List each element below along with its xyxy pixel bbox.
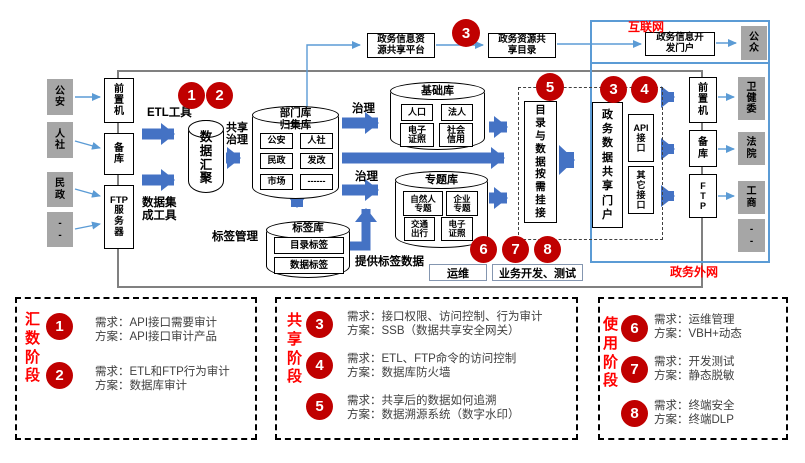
consumer-health: 卫 健 委	[738, 77, 765, 120]
legend-badge-3: 3	[306, 311, 333, 338]
tag-management-label: 标签管理	[212, 231, 258, 244]
topic-cell: 电子 证照	[441, 217, 473, 241]
tag-db: 标签库 目录标签 数据标签	[266, 221, 350, 278]
dept-cell: 公安	[260, 133, 293, 149]
right-front-machine: 前 置 机	[689, 77, 717, 123]
left-front-machine: 前 置 机	[104, 78, 134, 123]
base-cell: 社会 信用	[439, 123, 473, 147]
diagram-canvas: 公 安 人 社 民 政 - - 前 置 机 备 库 FTP 服 务 器 ETL工…	[0, 0, 805, 463]
left-backup-db: 备 库	[104, 133, 134, 175]
dev-test-box: 业务开发、测试	[492, 264, 583, 281]
dept-cell: ------	[300, 174, 333, 190]
tag-cell: 数据标签	[274, 257, 344, 274]
api-interface-box: API 接 口	[628, 114, 654, 162]
legend-req: 需求：共享后的数据如何追溯	[347, 394, 520, 408]
share-portal-box: 政 务 数 据 共 享 门 户	[592, 102, 623, 228]
tag-cell: 目录标签	[274, 237, 344, 254]
legend-badge-8: 8	[621, 400, 648, 427]
badge-3-portal: 3	[600, 76, 627, 103]
badge-6: 6	[470, 236, 497, 263]
dept-cell: 发改	[300, 153, 333, 169]
dept-cell: 民政	[260, 153, 293, 169]
legend-item: 需求：接口权限、访问控制、行为审计 方案：SSB（数据共享安全网关）	[347, 310, 543, 338]
legend-req: 需求：ETL、FTP命令的访问控制	[347, 352, 516, 366]
dept-cell: 市场	[260, 174, 293, 190]
mount-box: 目 录 与 数 据 按 需 挂 接	[524, 101, 557, 223]
legend-sol: 方案：数据库防火墙	[347, 366, 516, 380]
legend-sol: 方案：API接口审计产品	[95, 330, 217, 344]
left-ftp-server: FTP 服 务 器	[104, 185, 134, 249]
legend-sol: 方案：静态脱敏	[654, 369, 735, 383]
legend-req: 需求：终端安全	[654, 399, 735, 413]
topic-db: 专题库 自然人 专题 企业 专题 交通 出行 电子 证照	[395, 171, 488, 248]
internet-label: 互联网	[628, 21, 664, 34]
source-hr: 人 社	[47, 122, 73, 158]
legend-badge-7: 7	[621, 356, 648, 383]
badge-7: 7	[502, 236, 529, 263]
etl-tool-label: ETL工具	[147, 107, 192, 120]
share-catalog-box: 政务资源共 享目录	[488, 33, 556, 58]
legend-collect-title: 汇 数 阶 段	[25, 311, 40, 386]
base-cell: 电子 证照	[400, 123, 434, 147]
tag-db-title: 标签库	[267, 223, 349, 235]
legend-badge-6: 6	[621, 315, 648, 342]
topic-db-title: 专题库	[396, 174, 487, 186]
legend-sol: 方案：VBH+动态	[654, 327, 742, 341]
base-cell: 法人	[441, 104, 473, 121]
arrow-hr-backup	[75, 141, 100, 148]
department-db-title: 部门库 归集库	[253, 108, 338, 131]
base-cell: 人口	[401, 104, 433, 121]
arrow-others-ftp	[75, 224, 100, 229]
legend-badge-1: 1	[46, 313, 73, 340]
share-platform-box: 政务信息资 源共享平台	[367, 33, 435, 58]
arrow-civil-ftp	[75, 189, 100, 196]
legend-sol: 方案：终端DLP	[654, 413, 735, 427]
legend-use-title: 使 用 阶 段	[603, 316, 618, 391]
legend-req: 需求：API接口需要审计	[95, 316, 217, 330]
legend-item: 需求：终端安全 方案：终端DLP	[654, 399, 735, 427]
legend-sol: 方案：数据库审计	[95, 379, 230, 393]
legend-badge-2: 2	[46, 362, 73, 389]
badge-5: 5	[536, 73, 564, 101]
legend-req: 需求：接口权限、访问控制、行为审计	[347, 310, 543, 324]
legend-req: 需求：开发测试	[654, 355, 735, 369]
source-police: 公 安	[47, 79, 73, 115]
provide-tag-data-label: 提供标签数据	[355, 256, 424, 269]
legend-share-title: 共 享 阶 段	[287, 312, 302, 387]
legend-item: 需求：运维管理 方案：VBH+动态	[654, 313, 742, 341]
arrow-deptdb-platform	[307, 45, 360, 110]
legend-badge-5: 5	[306, 393, 333, 420]
right-backup-db: 备 库	[689, 130, 717, 167]
badge-4-portal: 4	[631, 76, 658, 103]
badge-2: 2	[206, 82, 233, 109]
right-ftp: F T P	[689, 174, 717, 218]
department-db: 部门库 归集库 公安 人社 民政 发改 市场 ------	[252, 106, 339, 199]
aggregation-db-title: 数 据 汇 聚	[189, 131, 223, 186]
governance-bottom-label: 治理	[355, 171, 378, 184]
dept-cell: 人社	[300, 133, 333, 149]
base-db-title: 基础库	[391, 85, 484, 97]
arrow-tagdb-topic	[349, 209, 366, 246]
legend-req: 需求：ETL和FTP行为审计	[95, 365, 230, 379]
base-db: 基础库 人口 法人 电子 证照 社会 信用	[390, 82, 485, 150]
legend-item: 需求：开发测试 方案：静态脱敏	[654, 355, 735, 383]
source-others: - -	[47, 212, 73, 247]
legend-req: 需求：运维管理	[654, 313, 742, 327]
aggregation-db: 数 据 汇 聚	[188, 120, 224, 193]
integration-tool-label: 数据集 成工具	[142, 197, 177, 223]
share-governance-label: 共享 治理	[226, 122, 248, 147]
badge-1: 1	[178, 82, 205, 109]
public-box: 公 众	[741, 26, 767, 60]
other-interface-box: 其 它 接 口	[628, 166, 654, 214]
badge-8: 8	[534, 236, 561, 263]
consumer-court: 法 院	[738, 132, 765, 165]
topic-cell: 自然人 专题	[403, 191, 443, 216]
dev-portal-box: 政务信息开 发门户	[645, 32, 715, 56]
legend-badge-4: 4	[306, 352, 333, 379]
legend-item: 需求：ETL、FTP命令的访问控制 方案：数据库防火墙	[347, 352, 516, 380]
source-civil: 民 政	[47, 172, 73, 207]
topic-cell: 交通 出行	[404, 217, 435, 241]
consumer-others: - -	[738, 219, 765, 252]
legend-item: 需求：共享后的数据如何追溯 方案：数据溯源系统（数字水印）	[347, 394, 520, 422]
topic-cell: 企业 专题	[446, 191, 478, 216]
legend-sol: 方案：SSB（数据共享安全网关）	[347, 324, 543, 338]
badge-3-top: 3	[452, 19, 480, 47]
ops-box: 运维	[429, 264, 487, 281]
consumer-commerce: 工 商	[738, 181, 765, 214]
legend-item: 需求：ETL和FTP行为审计 方案：数据库审计	[95, 365, 230, 393]
legend-sol: 方案：数据溯源系统（数字水印）	[347, 408, 520, 422]
extranet-label: 政务外网	[670, 266, 718, 279]
governance-top-label: 治理	[352, 103, 375, 116]
legend-item: 需求：API接口需要审计 方案：API接口审计产品	[95, 316, 217, 344]
